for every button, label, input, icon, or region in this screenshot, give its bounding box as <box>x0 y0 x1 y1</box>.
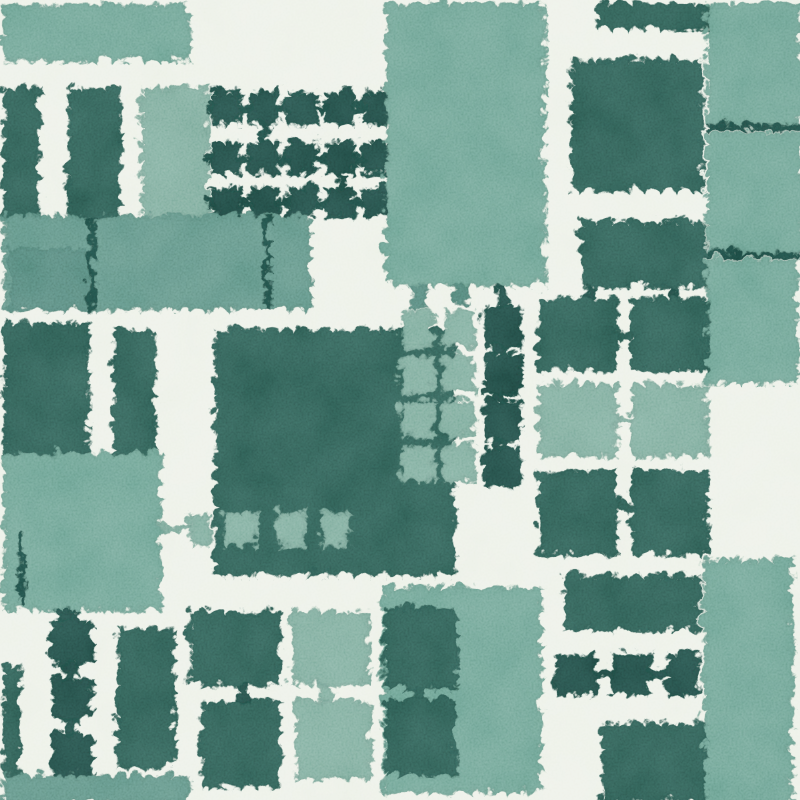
top-band <box>0 0 186 58</box>
bottom-light-sq <box>288 608 366 682</box>
grid-b-link <box>615 499 628 508</box>
chain-col-sq <box>480 303 518 345</box>
bottom-dark-rect <box>198 698 278 784</box>
grid-a-sq <box>284 184 314 214</box>
grid-b-link <box>615 327 628 336</box>
grid-b-sq <box>535 381 615 454</box>
col-a-mid <box>0 320 86 452</box>
grid-b-link <box>615 413 628 422</box>
grid-a-vlink <box>334 172 342 184</box>
bottom-dark-rect <box>186 608 278 682</box>
left-thin-line <box>16 532 22 604</box>
grid-a-sq <box>284 138 314 172</box>
right-col-seg <box>703 128 800 249</box>
light-col-sq <box>398 352 432 390</box>
right-col-seam <box>702 249 796 255</box>
dark-col-a <box>0 84 38 214</box>
grid-a-stub <box>202 100 210 110</box>
right-col-seg <box>703 0 800 121</box>
grid-b-sq <box>628 467 705 552</box>
bottom-teal-dark-vlink <box>408 685 424 697</box>
light-col-sq <box>440 397 472 434</box>
grid-a-link <box>276 101 284 110</box>
right-col-seg <box>702 256 796 380</box>
chain-col-sq <box>480 396 518 438</box>
block-chain-line <box>156 522 186 529</box>
block-chain-sq <box>185 510 209 541</box>
grid-b-sq <box>628 381 705 454</box>
grid-a-sq <box>284 88 314 121</box>
br-dark-block <box>598 720 702 800</box>
chain-left-stub <box>54 604 74 620</box>
top-dark-rect <box>595 0 703 26</box>
col-b-mid <box>110 326 152 453</box>
grid-a-link <box>352 195 360 204</box>
wire-a <box>86 212 92 307</box>
grid-a-link <box>238 101 246 110</box>
abstract-pattern-canvas <box>0 0 800 800</box>
grid-a-link <box>238 195 246 204</box>
grid-a-link <box>314 101 322 110</box>
br-chain-hlink <box>592 666 610 676</box>
grid-a-sq <box>208 88 238 121</box>
block-chain-sq <box>318 508 346 544</box>
grid-a-sq <box>246 184 276 214</box>
light-col-sq <box>398 397 432 434</box>
br-teal-col <box>700 556 790 800</box>
block-chain-sq <box>274 508 302 544</box>
grid-a-link <box>314 195 322 204</box>
top-column <box>382 0 542 282</box>
light-col-sq <box>398 308 432 345</box>
right-col-seam <box>703 120 800 127</box>
chain-left-vlink <box>61 660 74 676</box>
chain-col-sq <box>480 350 518 392</box>
block-chain-sq <box>220 508 254 544</box>
grid-a-link <box>314 152 322 161</box>
grid-a-stub <box>202 194 210 204</box>
grid-a-sq <box>208 138 238 172</box>
bottom-light-vlink <box>314 681 330 699</box>
chain-left-sq <box>48 730 90 774</box>
teal-col-top <box>138 84 206 214</box>
left-teal-block <box>0 450 158 607</box>
grid-a-link <box>276 152 284 161</box>
grid-b-sq <box>535 295 615 368</box>
chain-col-vlink <box>493 434 503 447</box>
band-sub <box>6 246 90 307</box>
grid-a-sq <box>322 88 352 121</box>
column-stub <box>408 281 424 307</box>
light-col-sq <box>440 441 472 478</box>
chain-left-sq <box>48 618 90 662</box>
grid-a-link <box>352 101 360 110</box>
left-strip <box>0 662 18 776</box>
watercolor-shapes-layer <box>0 0 800 800</box>
column-stub <box>450 281 464 303</box>
grid-a-stub <box>202 150 210 160</box>
br-chain-sq <box>552 650 594 692</box>
bottom-light-sq <box>292 698 368 776</box>
chain-col-vlink <box>493 388 503 400</box>
br-bar <box>560 572 698 628</box>
grid-a-sq <box>208 184 238 214</box>
light-col-sq <box>440 352 472 390</box>
chain-col-sq <box>480 443 518 483</box>
bottom-dark-vlink <box>234 681 248 699</box>
grid-a-vlink <box>258 121 266 138</box>
light-col-sq <box>398 441 432 478</box>
bottom-band <box>0 772 186 800</box>
bottom-teal-dark-sq <box>381 604 455 686</box>
grid-a-sq <box>246 138 276 172</box>
grid-a-sq <box>322 138 352 172</box>
bottom-teal-dark-sq <box>381 696 453 772</box>
chain-left-vlink <box>61 714 74 732</box>
chain-col-vlink <box>493 341 503 354</box>
mid-dark-rect <box>578 218 702 284</box>
wire-b <box>261 214 267 307</box>
dark-col-b <box>64 84 118 214</box>
chain-left-sq <box>48 674 90 716</box>
top-dark-square <box>568 56 700 188</box>
grid-b-sq <box>535 467 615 552</box>
column-stub-dark <box>492 281 506 305</box>
br-chain-sq <box>608 650 648 692</box>
grid-a-sq <box>246 88 276 121</box>
grid-a-link <box>276 195 284 204</box>
br-chain-sq <box>664 650 696 692</box>
grid-a-link <box>352 152 360 161</box>
grid-b-sq <box>628 295 705 368</box>
grid-a-link <box>238 152 246 161</box>
grid-a-sq <box>322 184 352 214</box>
br-chain-hlink <box>646 666 666 676</box>
tall-dark-rect <box>114 626 172 765</box>
light-col-sq <box>440 308 472 345</box>
